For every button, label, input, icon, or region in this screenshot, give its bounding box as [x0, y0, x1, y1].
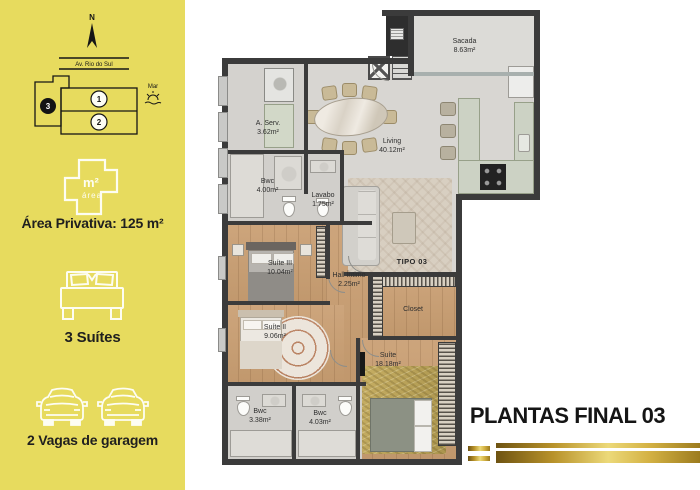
room-label-sacada: Sacada8.63m² — [417, 38, 512, 56]
dining-chair — [321, 85, 338, 101]
window — [218, 328, 226, 352]
bathroom-sink — [262, 394, 286, 407]
area-icon-sub: área — [82, 191, 102, 200]
coffee-table — [392, 212, 416, 244]
floor-plan: Sacada8.63m² A. Serv.3.62m² Living40.12m… — [222, 10, 540, 465]
wall — [534, 10, 540, 200]
kitchen-island — [458, 98, 480, 164]
balcony-glass-door — [414, 72, 534, 76]
gold-bar — [468, 456, 490, 461]
wall — [226, 150, 344, 154]
bar-stool — [440, 102, 456, 116]
wall — [408, 10, 414, 76]
wardrobe — [372, 276, 456, 287]
pillow — [414, 400, 432, 426]
feature-label-area: Área Privativa: 125 m² — [8, 215, 177, 231]
wall — [304, 64, 308, 154]
kitchen-sink — [518, 134, 530, 152]
wall — [340, 154, 344, 225]
wall — [460, 194, 540, 200]
dining-chair — [342, 83, 357, 97]
room-label-living: Living40.12m² — [362, 138, 422, 156]
pillow — [414, 426, 432, 452]
wall — [226, 301, 330, 305]
bed-headboard — [238, 310, 284, 317]
sidebar: N Av. Rio do Sul 3 1 2 Mar — [0, 0, 185, 490]
room-label-lavabo: Lavabo1.75m² — [302, 192, 344, 210]
wall — [304, 154, 308, 194]
washer — [264, 68, 294, 102]
wall — [356, 338, 360, 459]
car-icon — [97, 384, 149, 428]
shower — [298, 430, 356, 457]
bed-duvet — [240, 341, 282, 369]
shower — [230, 430, 292, 457]
unit-3-number: 3 — [46, 102, 51, 111]
stove — [480, 164, 506, 190]
gold-bar — [468, 446, 490, 451]
room-label-suite2: Suíte II9.06m² — [246, 324, 304, 342]
wardrobe — [316, 226, 326, 278]
wall — [326, 223, 330, 279]
nightstand — [232, 244, 244, 256]
street-label: Av. Rio do Sul — [75, 62, 112, 68]
wall — [382, 10, 540, 16]
window — [218, 184, 228, 214]
feature-label-garage: 2 Vagas de garagem — [8, 432, 177, 448]
page-title: PLANTAS FINAL 03 — [445, 403, 690, 429]
wall — [222, 459, 462, 465]
room-label-aserv: A. Serv.3.62m² — [238, 120, 298, 138]
bar-stool — [440, 146, 456, 160]
room-label-closet: Closet — [378, 306, 448, 315]
room-label-bwc2: Bwc3.38m² — [234, 408, 286, 426]
window — [218, 148, 228, 178]
flyer-page: N Av. Rio do Sul 3 1 2 Mar — [0, 0, 700, 490]
compass-label: N — [89, 13, 95, 22]
nightstand — [300, 244, 312, 256]
room-label-hall: Hall Íntimo2.25m² — [327, 272, 371, 290]
bed-icon — [53, 270, 131, 326]
bathroom-sink — [302, 394, 326, 407]
window — [218, 256, 226, 280]
gold-bar — [496, 443, 700, 448]
unit-1-number: 1 — [97, 95, 102, 104]
bar-stool — [440, 124, 456, 138]
feature-label-suites: 3 Suítes — [8, 329, 177, 346]
gold-bar — [496, 451, 700, 463]
room-label-bwc1: Bwc4.00m² — [240, 178, 295, 196]
room-label-bwc3: Bwc4.03m² — [294, 410, 346, 428]
area-plan-icon: m² área — [61, 158, 123, 216]
wall — [222, 58, 412, 64]
sea-label: Mar — [148, 84, 158, 90]
wall — [226, 382, 366, 386]
room-label-suite3: Suíte III10.04m² — [250, 260, 310, 278]
unit-type-label: TIPO 03 — [380, 257, 444, 266]
area-icon-m2: m² — [83, 175, 100, 190]
grill-icon — [390, 28, 404, 40]
window — [218, 112, 228, 142]
compass-north-icon — [87, 23, 97, 48]
car-icon — [36, 384, 88, 428]
bathroom-sink — [310, 160, 336, 173]
dining-chair — [342, 141, 357, 155]
site-map: N Av. Rio do Sul 3 1 2 Mar — [17, 8, 169, 136]
sofa-cushions — [358, 190, 376, 260]
window — [218, 76, 228, 106]
bed-headboard — [246, 242, 296, 250]
wall — [370, 336, 460, 340]
room-label-master-suite: Suíte18.18m² — [362, 352, 414, 370]
wall — [226, 221, 372, 225]
fridge — [508, 66, 534, 98]
wardrobe — [438, 342, 456, 446]
sun-sea-icon — [145, 91, 161, 104]
unit-2-number: 2 — [97, 118, 102, 127]
